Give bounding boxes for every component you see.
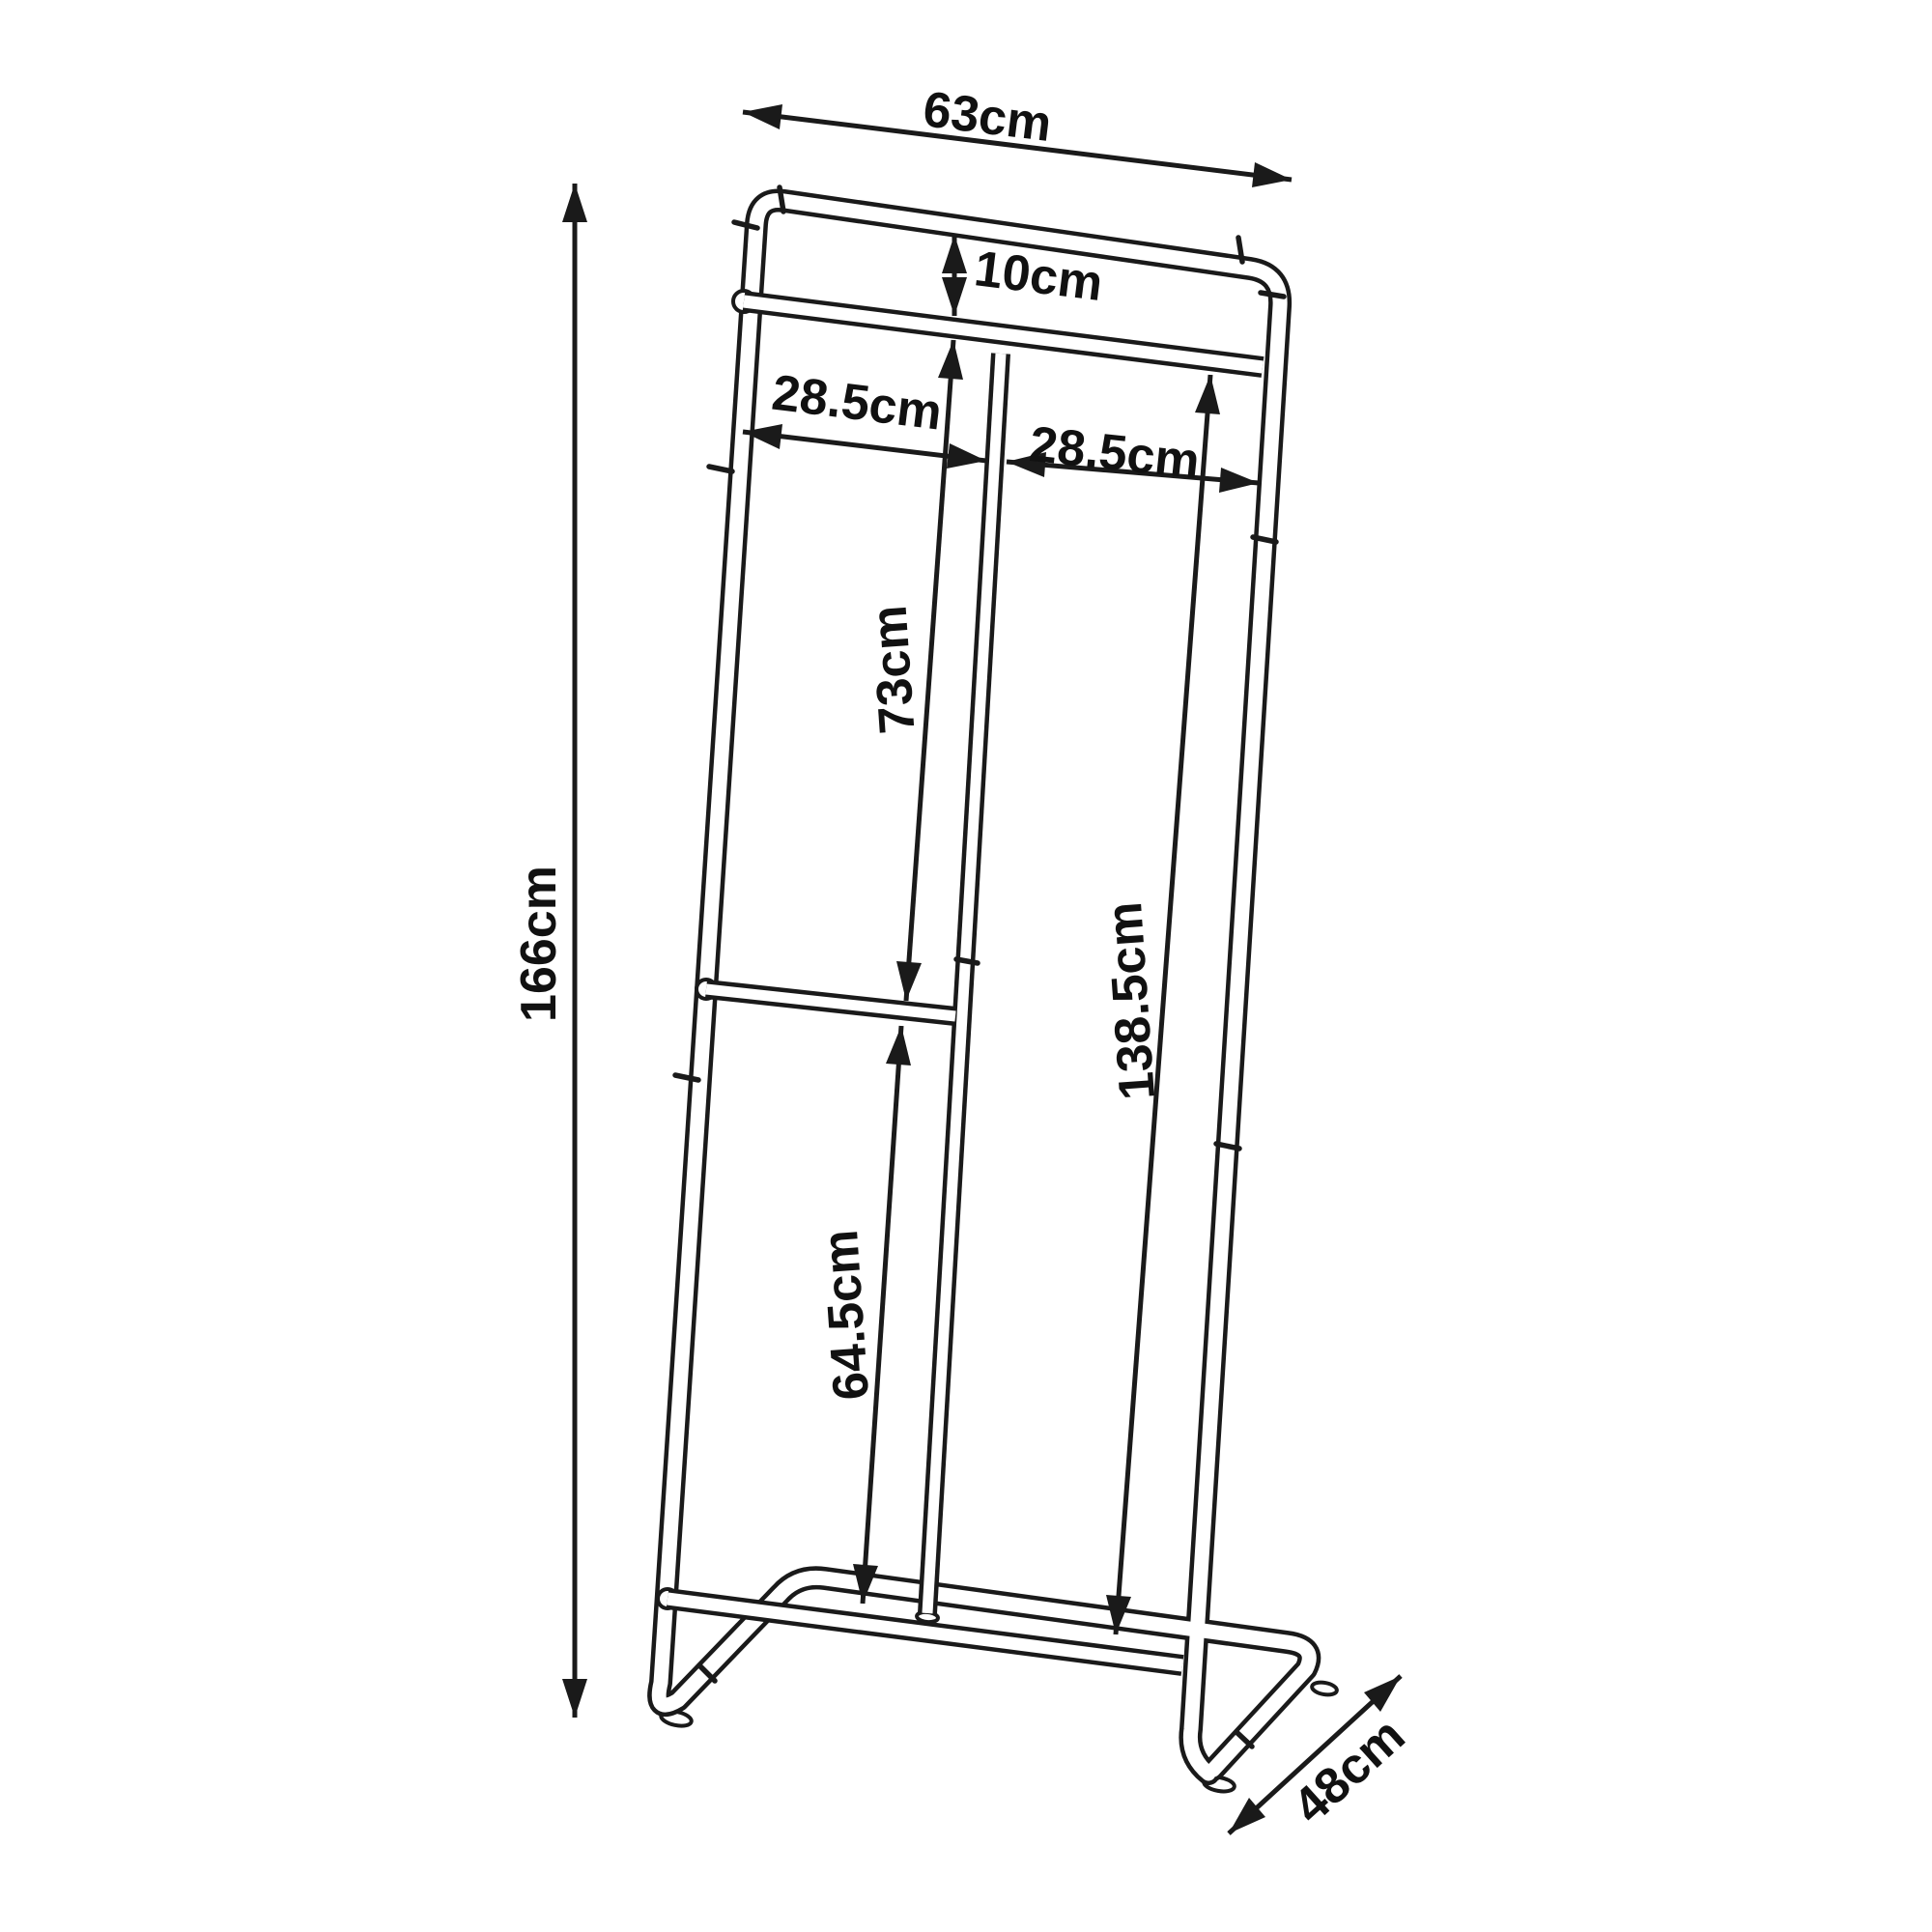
dim-right-section: 28.5cm	[1007, 416, 1259, 493]
dim-label-middle-section: 73cm	[861, 604, 925, 736]
dim-lower-section: 64.5cm	[812, 1026, 911, 1604]
dim-base-depth: 48cm	[1229, 1676, 1415, 1834]
dim-top-width: 63cm	[743, 81, 1292, 187]
dim-label-right-section: 28.5cm	[1027, 416, 1202, 490]
arrowhead-icon	[942, 277, 967, 316]
arrowhead-icon	[743, 104, 782, 129]
arrowhead-icon	[1195, 375, 1220, 414]
dim-label-total-height: 166cm	[511, 866, 567, 1022]
arrowhead-icon	[947, 443, 986, 469]
dim-label-top-width: 63cm	[921, 81, 1055, 153]
back-right-foot-pad	[1311, 1681, 1338, 1696]
arrowhead-icon	[562, 184, 587, 222]
arrowhead-icon	[1252, 162, 1292, 187]
arrowhead-icon	[886, 1026, 911, 1065]
arrowhead-icon	[942, 235, 967, 273]
dim-label-lower-section: 64.5cm	[812, 1228, 880, 1402]
dim-middle-section: 73cm	[861, 340, 963, 1001]
middle-bar-tube	[696, 980, 955, 1016]
dim-total-height: 166cm	[511, 184, 587, 1718]
dim-label-hanging-height: 138.5cm	[1096, 900, 1166, 1102]
dim-label-left-section: 28.5cm	[769, 365, 945, 441]
arrowhead-icon	[562, 1679, 587, 1718]
rack-frame	[658, 187, 1338, 1794]
arrowhead-icon	[938, 340, 963, 380]
arrowhead-icon	[896, 961, 922, 1001]
clothes-rack-dimension-drawing: 63cm 10cm 28.5cm 28.5cm 73cm	[0, 0, 1932, 1932]
technical-drawing-page: 63cm 10cm 28.5cm 28.5cm 73cm	[0, 0, 1932, 1932]
tube-joints	[675, 187, 1284, 1747]
